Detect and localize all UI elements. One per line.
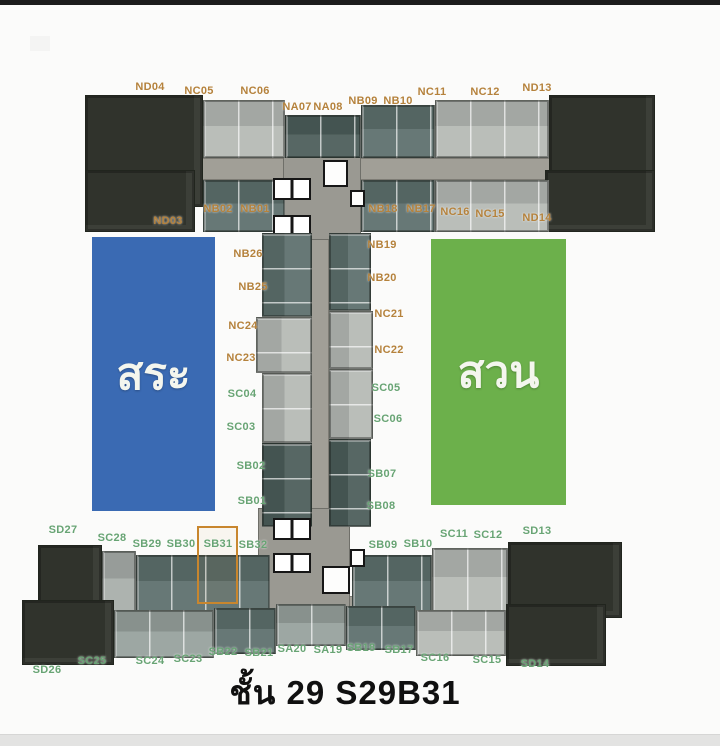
unit-label-sc15: SC15	[473, 654, 502, 666]
unit-label-nb19: NB19	[367, 239, 396, 251]
garden-area: สวน	[431, 239, 566, 505]
unit-label-sb08: SB08	[367, 500, 396, 512]
unit-label-sb32: SB32	[239, 539, 268, 551]
unit-label-nc22: NC22	[374, 344, 403, 356]
unit-label-sc03: SC03	[227, 421, 256, 433]
unit-label-sb18: SB18	[347, 642, 376, 654]
block-na07-na08	[285, 115, 361, 158]
unit-label-nc21: NC21	[374, 308, 403, 320]
stairwell	[323, 160, 348, 187]
unit-label-sc16: SC16	[421, 652, 450, 664]
unit-label-na07: NA07	[282, 101, 311, 113]
unit-label-sc28: SC28	[98, 532, 127, 544]
unit-label-nd04: ND04	[135, 81, 164, 93]
unit-label-nc06: NC06	[240, 85, 269, 97]
block-sa20-sa19	[276, 604, 346, 646]
unit-label-sd13: SD13	[523, 525, 552, 537]
unit-label-nd03: ND03	[153, 215, 182, 227]
unit-label-nb01: NB01	[240, 203, 269, 215]
unit-label-sb31: SB31	[204, 538, 233, 550]
unit-label-sc04: SC04	[228, 388, 257, 400]
unit-label-nc16: NC16	[440, 206, 469, 218]
block-sc04-sc03	[262, 373, 312, 443]
unit-label-na08: NA08	[313, 101, 342, 113]
unit-label-nc12: NC12	[470, 86, 499, 98]
unit-label-nc23: NC23	[226, 352, 255, 364]
service-shaft	[350, 549, 365, 567]
unit-label-nd13: ND13	[522, 82, 551, 94]
floor-title: ชั้น 29 S29B31	[110, 666, 580, 719]
block-nd14	[545, 170, 655, 232]
block-nc05-nc06	[203, 100, 285, 158]
elevator-bank	[273, 178, 311, 200]
elevator-bank	[273, 215, 311, 235]
block-sc11-sc12	[432, 548, 508, 612]
elevator-bank	[273, 553, 311, 573]
unit-label-sa20: SA20	[278, 643, 307, 655]
block-sd14	[506, 604, 606, 666]
service-shaft	[350, 190, 365, 207]
unit-label-nb02: NB02	[203, 203, 232, 215]
pool-label: สระ	[116, 339, 190, 409]
block-nc24-nc23	[256, 317, 312, 373]
unit-label-sb02: SB02	[237, 460, 266, 472]
unit-label-sb17: SB17	[385, 644, 414, 656]
bottom-border-bar	[0, 734, 720, 746]
unit-label-sc06: SC06	[374, 413, 403, 425]
top-border-bar	[0, 0, 720, 5]
unit-label-sb10: SB10	[404, 538, 433, 550]
unit-label-sc25: SC25	[78, 655, 107, 667]
unit-label-sd26: SD26	[33, 664, 62, 676]
unit-label-nb25: NB25	[238, 281, 267, 293]
unit-label-nb20: NB20	[367, 272, 396, 284]
block-nb09-nb10	[361, 105, 435, 158]
unit-label-sb09: SB09	[369, 539, 398, 551]
unit-label-nc24: NC24	[228, 320, 257, 332]
scan-smudge	[30, 36, 50, 51]
unit-label-sc12: SC12	[474, 529, 503, 541]
unit-label-sb30: SB30	[167, 538, 196, 550]
unit-label-nb09: NB09	[348, 95, 377, 107]
block-sb07-sb08	[329, 439, 371, 527]
block-nc11-nc12	[435, 100, 549, 158]
unit-label-sb21: SB21	[245, 647, 274, 659]
block-nb19-nb20	[329, 233, 371, 311]
block-sc16-sc15	[416, 610, 506, 656]
unit-label-nb10: NB10	[383, 95, 412, 107]
unit-label-nb26: NB26	[233, 248, 262, 260]
unit-label-nc05: NC05	[184, 85, 213, 97]
block-sc25-sc23	[114, 610, 214, 658]
unit-label-sb07: SB07	[368, 468, 397, 480]
elevator-bank	[273, 518, 311, 540]
block-sb02-sb01	[262, 443, 312, 527]
unit-label-nc11: NC11	[418, 86, 447, 98]
unit-label-nb17: NB17	[406, 203, 435, 215]
floor-plan: สระ สวน ND04NC05NC06NA07NA08NB09NB10NC11…	[0, 0, 720, 745]
unit-label-sb01: SB01	[238, 495, 267, 507]
block-sc05-sc06	[329, 369, 373, 439]
garden-label: สวน	[458, 337, 540, 407]
block-nb26-nb25	[262, 233, 312, 317]
unit-label-nc15: NC15	[475, 208, 504, 220]
block-nc21-nc22	[329, 311, 373, 369]
unit-label-nd14: ND14	[522, 212, 551, 224]
unit-label-sc23: SC23	[174, 653, 203, 665]
unit-label-sb22: SB22	[209, 646, 238, 658]
north-corridor	[150, 158, 610, 180]
unit-label-sc05: SC05	[372, 382, 401, 394]
stairwell	[322, 566, 350, 594]
unit-label-sc11: SC11	[440, 528, 468, 540]
unit-label-sa19: SA19	[314, 644, 343, 656]
unit-label-nb18: NB18	[368, 203, 397, 215]
pool-area: สระ	[92, 237, 215, 511]
unit-label-sd27: SD27	[49, 524, 78, 536]
unit-label-sb29: SB29	[133, 538, 162, 550]
